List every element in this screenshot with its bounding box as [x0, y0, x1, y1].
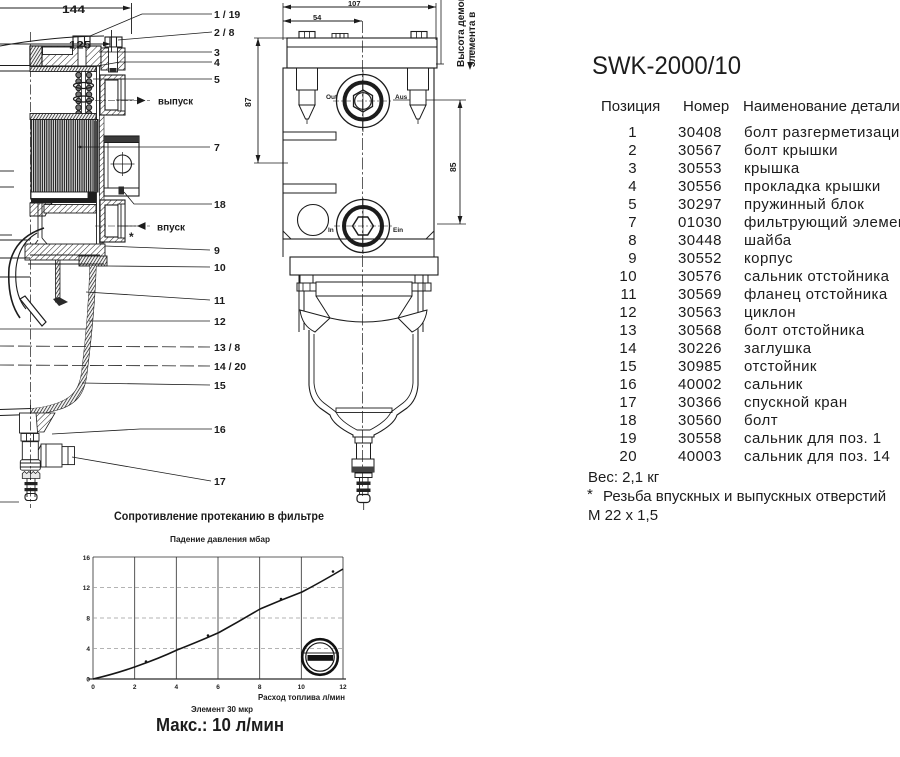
svg-text:болт разгерметизации: болт разгерметизации: [744, 124, 900, 141]
svg-text:SWK-2000/10: SWK-2000/10: [592, 52, 741, 80]
svg-text:40003: 40003: [678, 448, 722, 465]
svg-text:Ein: Ein: [393, 227, 403, 234]
svg-text:40002: 40002: [678, 376, 722, 393]
svg-text:14 / 20: 14 / 20: [214, 361, 246, 373]
svg-text:0: 0: [91, 684, 95, 691]
svg-text:1: 1: [628, 124, 637, 141]
svg-text:заглушка: заглушка: [744, 340, 812, 357]
svg-text:пружинный блок: пружинный блок: [744, 196, 864, 213]
svg-text:впуск: впуск: [157, 222, 186, 234]
svg-text:16: 16: [83, 555, 91, 562]
svg-text:30985: 30985: [678, 358, 722, 375]
svg-text:4: 4: [214, 57, 220, 69]
svg-text:18: 18: [619, 412, 637, 429]
svg-text:6: 6: [216, 684, 220, 691]
svg-text:30297: 30297: [678, 196, 722, 213]
svg-text:17: 17: [619, 394, 637, 411]
svg-text:8: 8: [258, 684, 262, 691]
svg-text:10: 10: [214, 262, 226, 274]
svg-text:2 / 8: 2 / 8: [214, 27, 235, 39]
svg-text:сальник для поз. 14: сальник для поз. 14: [744, 448, 890, 465]
svg-text:0: 0: [86, 677, 90, 684]
svg-text:крышка: крышка: [744, 160, 800, 177]
svg-text:болт: болт: [744, 412, 778, 429]
svg-text:корпус: корпус: [744, 250, 793, 267]
svg-text:15: 15: [619, 358, 637, 375]
svg-text:10: 10: [298, 684, 306, 691]
svg-text:Наименование детали: Наименование детали: [743, 98, 900, 115]
svg-text:12: 12: [214, 316, 226, 328]
svg-text:30448: 30448: [678, 232, 722, 249]
svg-text:Сопротивление протеканию в фил: Сопротивление протеканию в фильтре: [114, 511, 324, 523]
svg-text:*: *: [129, 230, 134, 244]
svg-text:Макс.: 10 л/мин: Макс.: 10 л/мин: [156, 715, 284, 735]
svg-text:8: 8: [86, 616, 90, 623]
svg-text:19: 19: [619, 430, 637, 447]
svg-text:30560: 30560: [678, 412, 722, 429]
svg-text:3: 3: [628, 160, 637, 177]
svg-text:18: 18: [214, 199, 226, 211]
svg-text:30567: 30567: [678, 142, 722, 159]
svg-text:спускной кран: спускной кран: [744, 394, 848, 411]
svg-text:01030: 01030: [678, 214, 722, 231]
svg-text:11: 11: [621, 286, 637, 303]
svg-text:20: 20: [619, 448, 637, 465]
svg-text:болт крышки: болт крышки: [744, 142, 838, 159]
svg-text:125: 125: [69, 40, 91, 52]
svg-text:сальник: сальник: [744, 376, 803, 393]
svg-text:шайба: шайба: [744, 232, 792, 249]
svg-text:Номер: Номер: [683, 98, 729, 115]
svg-text:Позиция: Позиция: [601, 98, 660, 115]
svg-text:5: 5: [214, 74, 220, 86]
svg-text:прокладка крышки: прокладка крышки: [744, 178, 881, 195]
svg-text:85: 85: [448, 162, 458, 172]
svg-text:Высота демонтажа: Высота демонтажа: [456, 0, 467, 67]
svg-text:16: 16: [214, 424, 226, 436]
svg-text:выпуск: выпуск: [158, 96, 194, 108]
svg-text:9: 9: [214, 245, 220, 257]
svg-text:7: 7: [214, 142, 220, 154]
svg-text:*: *: [587, 486, 593, 503]
svg-text:5: 5: [628, 196, 637, 213]
svg-text:11: 11: [214, 295, 225, 307]
svg-text:9: 9: [628, 250, 637, 267]
svg-text:Элемент 30 мкр: Элемент 30 мкр: [191, 704, 253, 714]
svg-text:13: 13: [619, 322, 637, 339]
svg-text:12: 12: [619, 304, 637, 321]
svg-text:Вес: 2,1 кг: Вес: 2,1 кг: [588, 469, 660, 486]
svg-text:циклон: циклон: [744, 304, 796, 321]
svg-text:87: 87: [243, 97, 253, 107]
svg-text:2: 2: [133, 684, 137, 691]
svg-text:12: 12: [83, 585, 91, 592]
svg-text:30553: 30553: [678, 160, 722, 177]
svg-text:30552: 30552: [678, 250, 722, 267]
svg-text:30576: 30576: [678, 268, 722, 285]
svg-text:4: 4: [628, 178, 637, 195]
svg-text:7: 7: [628, 214, 637, 231]
svg-text:отстойник: отстойник: [744, 358, 817, 375]
svg-text:2: 2: [628, 142, 637, 159]
svg-text:30366: 30366: [678, 394, 722, 411]
svg-text:14: 14: [619, 340, 637, 357]
svg-text:144: 144: [62, 4, 86, 16]
svg-text:Aus: Aus: [395, 94, 408, 101]
svg-text:элемента в: элемента в: [467, 12, 478, 67]
svg-text:30226: 30226: [678, 340, 722, 357]
svg-text:30569: 30569: [678, 286, 722, 303]
svg-text:17: 17: [214, 476, 226, 488]
svg-text:30558: 30558: [678, 430, 722, 447]
svg-text:30563: 30563: [678, 304, 722, 321]
svg-text:30408: 30408: [678, 124, 722, 141]
svg-text:Падение давления мбар: Падение давления мбар: [170, 534, 270, 544]
svg-text:4: 4: [174, 684, 178, 691]
svg-text:сальник для поз. 1: сальник для поз. 1: [744, 430, 882, 447]
svg-text:30568: 30568: [678, 322, 722, 339]
svg-text:Расход топлива л/мин: Расход топлива л/мин: [258, 692, 345, 702]
svg-text:Резьба впускных и выпускных от: Резьба впускных и выпускных отверстий: [603, 488, 886, 505]
svg-text:M 22 x 1,5: M 22 x 1,5: [588, 507, 658, 524]
svg-text:фланец отстойника: фланец отстойника: [744, 286, 888, 303]
svg-text:8: 8: [628, 232, 637, 249]
svg-text:15: 15: [214, 380, 226, 392]
svg-text:фильтрующий элемент: фильтрующий элемент: [744, 214, 900, 231]
svg-text:12: 12: [339, 684, 347, 691]
svg-text:In: In: [328, 227, 334, 234]
svg-text:4: 4: [86, 646, 90, 653]
svg-text:16: 16: [619, 376, 637, 393]
svg-text:сальник отстойника: сальник отстойника: [744, 268, 890, 285]
svg-text:1 / 19: 1 / 19: [214, 9, 240, 21]
svg-text:10: 10: [619, 268, 637, 285]
svg-text:Out: Out: [326, 94, 338, 101]
svg-text:30556: 30556: [678, 178, 722, 195]
svg-text:13 / 8: 13 / 8: [214, 342, 240, 354]
svg-text:болт отстойника: болт отстойника: [744, 322, 865, 339]
